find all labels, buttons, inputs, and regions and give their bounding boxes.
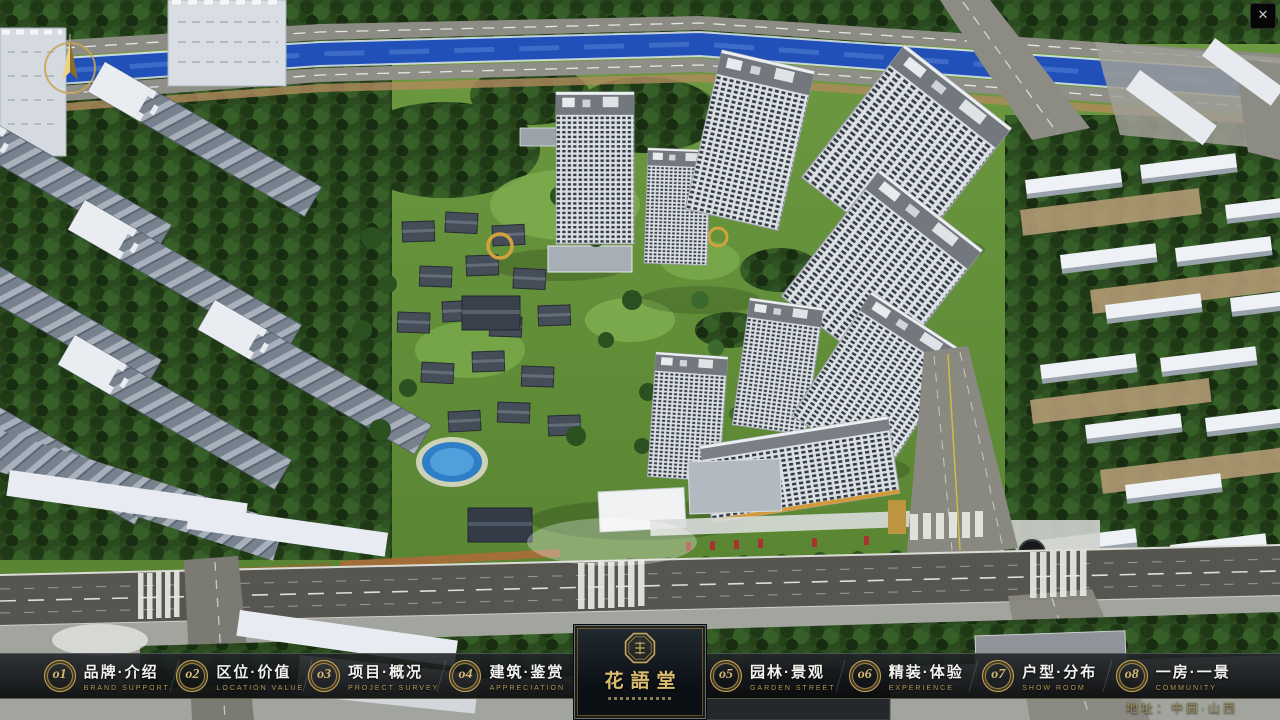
- nav-item-project[interactable]: o3 项目·概况 PROJECT SURVEY: [307, 654, 441, 698]
- nav-item-room-view[interactable]: o8 一房·一景 COMMUNITY: [1107, 654, 1241, 698]
- nav-item-badge: o7: [982, 660, 1014, 692]
- logo-title: 花語堂: [597, 666, 682, 693]
- nav-item-title: 精装·体验: [889, 661, 964, 682]
- compass-icon: [40, 32, 100, 98]
- nav-item-subtitle: BRAND SUPPORT: [84, 685, 170, 692]
- nav-group-left: o1 品牌·介绍 BRAND SUPPORT o2 区位·价值 LOCATION…: [40, 654, 574, 698]
- nav-item-interior[interactable]: o6 精装·体验 EXPERIENCE: [840, 654, 974, 698]
- nav-item-title: 园林·景观: [750, 661, 825, 682]
- close-button[interactable]: ✕: [1250, 3, 1276, 29]
- nav-item-subtitle: GARDEN STREET: [750, 685, 836, 692]
- nav-item-title: 户型·分布: [1022, 661, 1097, 682]
- nav-item-floorplan[interactable]: o7 户型·分布 SHOW ROOM: [973, 654, 1107, 698]
- nav-item-subtitle: LOCATION VALUE: [216, 685, 304, 692]
- brand-seal-icon: [624, 632, 656, 664]
- nav-item-badge: o8: [1116, 660, 1148, 692]
- nav-item-subtitle: EXPERIENCE: [889, 685, 954, 692]
- nav-item-title: 品牌·介绍: [84, 661, 159, 682]
- project-address: 地址：中国·山西: [1126, 699, 1238, 716]
- logo-tagline: [608, 697, 672, 700]
- nav-item-title: 区位·价值: [216, 661, 291, 682]
- nav-item-badge: o2: [176, 660, 208, 692]
- sales-presentation-screen: ✕ o1 品牌·介绍 BRAND SUPPORT o2 区位·价值 LOCATI…: [0, 0, 1280, 720]
- nav-item-subtitle: PROJECT SURVEY: [348, 685, 439, 692]
- nav-item-title: 项目·概况: [348, 661, 423, 682]
- nav-item-subtitle: COMMUNITY: [1156, 685, 1217, 692]
- nav-item-location[interactable]: o2 区位·价值 LOCATION VALUE: [174, 654, 308, 698]
- nav-item-badge: o6: [849, 660, 881, 692]
- masterplan-3d-view[interactable]: [0, 0, 1280, 720]
- nav-item-badge: o1: [44, 660, 76, 692]
- nav-item-brand[interactable]: o1 品牌·介绍 BRAND SUPPORT: [40, 654, 174, 698]
- nav-item-title: 一房·一景: [1156, 661, 1231, 682]
- nav-group-right: o5 园林·景观 GARDEN STREET o6 精装·体验 EXPERIEN…: [706, 654, 1240, 698]
- project-logo[interactable]: 花語堂: [574, 625, 706, 719]
- nav-item-title: 建筑·鉴赏: [489, 661, 564, 682]
- nav-item-badge: o5: [710, 660, 742, 692]
- nav-item-architecture[interactable]: o4 建筑·鉴赏 APPRECIATION: [441, 654, 575, 698]
- nav-item-badge: o4: [449, 660, 481, 692]
- nav-item-garden[interactable]: o5 园林·景观 GARDEN STREET: [706, 654, 840, 698]
- nav-item-badge: o3: [308, 660, 340, 692]
- nav-item-subtitle: APPRECIATION: [489, 685, 565, 692]
- nav-item-subtitle: SHOW ROOM: [1022, 685, 1086, 692]
